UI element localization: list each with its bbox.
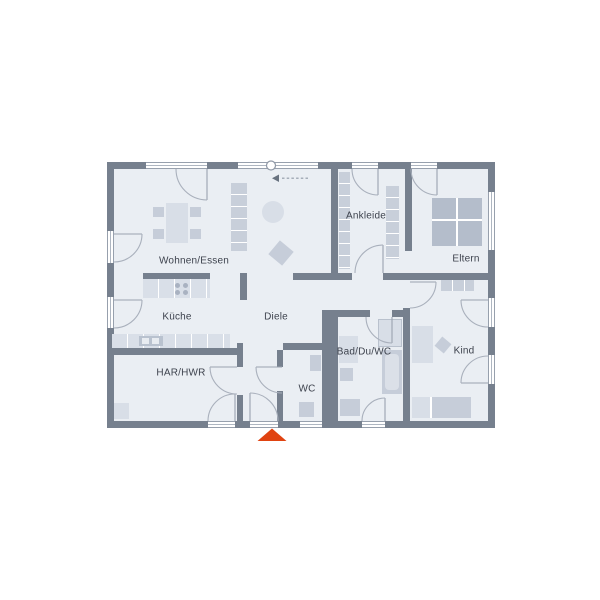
- kitchen-counter: [112, 334, 230, 348]
- room-label-kind: Kind: [454, 346, 475, 357]
- terrace-door-window: [176, 162, 207, 169]
- bed-pillow: [412, 397, 430, 418]
- wall: [392, 310, 403, 317]
- room-label-eltern: Eltern: [452, 254, 479, 265]
- wall: [405, 169, 412, 251]
- bed-divider: [456, 198, 458, 246]
- wall: [277, 391, 283, 421]
- kitchen-island: [143, 279, 210, 298]
- room-label-wc: WC: [298, 384, 315, 395]
- shelf-unit: [231, 183, 247, 251]
- sink-bowl: [152, 338, 159, 344]
- washing-machine: [340, 399, 360, 416]
- cooktop-burner: [175, 283, 180, 288]
- round-rug: [262, 201, 284, 223]
- window: [488, 355, 495, 384]
- chair: [153, 229, 164, 239]
- wall: [322, 317, 331, 350]
- bathtub-basin: [385, 354, 399, 390]
- wall: [403, 308, 410, 421]
- room-label-kueche: Küche: [162, 312, 191, 323]
- wc-toilet: [299, 402, 314, 417]
- wall: [237, 343, 243, 367]
- window: [488, 192, 495, 250]
- wall: [240, 273, 247, 300]
- wall: [293, 273, 352, 280]
- side-entrance-door: [208, 421, 235, 428]
- bed-divider: [432, 219, 482, 221]
- sink-bowl: [142, 338, 149, 344]
- window: [300, 421, 322, 428]
- wall: [331, 169, 338, 273]
- wall: [277, 350, 283, 367]
- wardrobe: [386, 186, 399, 259]
- chair: [190, 207, 201, 217]
- window: [488, 298, 495, 327]
- bed-divider: [430, 397, 432, 418]
- wall: [237, 395, 243, 421]
- bath-toilet: [340, 368, 353, 381]
- wardrobe: [441, 280, 474, 291]
- appliance: [114, 403, 129, 419]
- room-label-wohnen-essen: Wohnen/Essen: [159, 256, 229, 267]
- wall: [331, 317, 338, 421]
- floor-plan: Wohnen/Essen Küche HAR/HWR Diele WC Bad/…: [0, 0, 600, 600]
- desk: [412, 326, 433, 363]
- wall: [383, 273, 488, 280]
- room-label-har-hwr: HAR/HWR: [156, 368, 205, 379]
- shower: [378, 319, 402, 347]
- wall: [110, 348, 243, 355]
- window: [238, 162, 318, 169]
- window: [107, 231, 114, 263]
- cooktop-burner: [183, 283, 188, 288]
- entrance-triangle-marker: [258, 429, 287, 442]
- room-label-diele: Diele: [264, 312, 288, 323]
- window: [411, 162, 437, 169]
- wall: [322, 310, 370, 317]
- cooktop-burner: [183, 290, 188, 295]
- wall: [322, 350, 331, 421]
- dining-table: [166, 203, 188, 243]
- wc-sink: [310, 355, 321, 371]
- window: [362, 421, 385, 428]
- window: [146, 162, 176, 169]
- chair: [153, 207, 164, 217]
- window: [107, 297, 114, 328]
- cooktop-burner: [175, 290, 180, 295]
- room-label-bad-du-wc: Bad/Du/WC: [337, 347, 392, 358]
- chair: [190, 229, 201, 239]
- room-label-ankleide: Ankleide: [346, 211, 386, 222]
- main-entrance-door: [250, 421, 278, 428]
- window: [352, 162, 378, 169]
